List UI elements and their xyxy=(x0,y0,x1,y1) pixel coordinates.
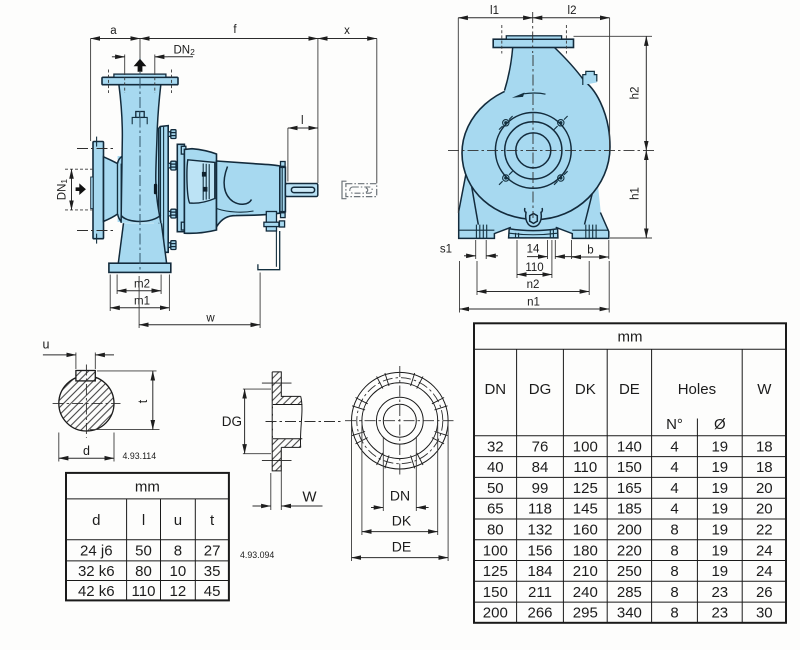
svg-text:50: 50 xyxy=(135,543,152,560)
svg-text:DE: DE xyxy=(392,539,411,555)
svg-text:110: 110 xyxy=(132,583,156,600)
svg-text:165: 165 xyxy=(617,480,642,497)
svg-text:u: u xyxy=(43,338,50,352)
svg-text:295: 295 xyxy=(573,605,598,622)
svg-text:Holes: Holes xyxy=(678,381,716,398)
svg-text:200: 200 xyxy=(483,605,508,622)
svg-text:a: a xyxy=(110,25,117,37)
svg-text:32: 32 xyxy=(487,438,504,455)
svg-text:27: 27 xyxy=(204,543,221,560)
svg-text:t: t xyxy=(136,399,150,403)
svg-text:110: 110 xyxy=(573,459,597,476)
svg-text:DN2: DN2 xyxy=(174,45,196,58)
svg-text:DG: DG xyxy=(529,381,552,398)
svg-text:156: 156 xyxy=(527,542,552,559)
svg-text:t: t xyxy=(210,512,215,529)
svg-text:u: u xyxy=(174,512,182,529)
svg-text:l1: l1 xyxy=(490,5,499,17)
svg-text:118: 118 xyxy=(528,501,552,518)
svg-text:h1: h1 xyxy=(630,187,642,200)
svg-text:23: 23 xyxy=(711,605,728,622)
svg-text:132: 132 xyxy=(527,522,552,539)
svg-text:24: 24 xyxy=(756,563,773,580)
svg-text:76: 76 xyxy=(532,438,549,455)
svg-text:4.93.114: 4.93.114 xyxy=(123,451,157,461)
svg-text:125: 125 xyxy=(573,480,598,497)
svg-text:19: 19 xyxy=(711,501,728,518)
svg-text:45: 45 xyxy=(204,583,221,600)
svg-text:26: 26 xyxy=(756,584,773,601)
svg-text:f: f xyxy=(233,24,237,36)
svg-text:12: 12 xyxy=(170,583,187,600)
svg-text:20: 20 xyxy=(756,501,773,518)
svg-text:110: 110 xyxy=(525,262,543,274)
svg-text:14: 14 xyxy=(527,244,540,256)
svg-text:m1: m1 xyxy=(134,296,150,308)
svg-text:340: 340 xyxy=(617,605,642,622)
svg-text:19: 19 xyxy=(711,563,728,580)
svg-text:19: 19 xyxy=(711,480,728,497)
svg-text:42 k6: 42 k6 xyxy=(78,583,115,600)
svg-text:19: 19 xyxy=(711,438,728,455)
svg-text:W: W xyxy=(302,489,317,506)
svg-text:Ø: Ø xyxy=(714,416,726,433)
svg-text:19: 19 xyxy=(711,542,728,559)
svg-text:DE: DE xyxy=(619,381,640,398)
svg-text:l: l xyxy=(301,115,304,127)
svg-text:8: 8 xyxy=(670,522,678,539)
svg-text:x: x xyxy=(344,25,350,37)
svg-text:220: 220 xyxy=(617,542,642,559)
svg-text:DK: DK xyxy=(575,381,596,398)
svg-text:80: 80 xyxy=(135,563,152,580)
svg-text:240: 240 xyxy=(573,584,598,601)
svg-text:4.93.094: 4.93.094 xyxy=(240,550,274,560)
svg-text:4: 4 xyxy=(670,480,678,497)
svg-text:250: 250 xyxy=(617,563,642,580)
svg-text:185: 185 xyxy=(617,501,642,518)
svg-text:DG: DG xyxy=(222,414,242,429)
svg-text:s1: s1 xyxy=(440,244,452,256)
svg-text:4: 4 xyxy=(670,438,678,455)
svg-text:80: 80 xyxy=(487,522,504,539)
svg-text:50: 50 xyxy=(487,480,504,497)
svg-text:DN: DN xyxy=(484,381,506,398)
svg-text:285: 285 xyxy=(617,584,642,601)
svg-text:DN1: DN1 xyxy=(57,179,70,201)
svg-text:150: 150 xyxy=(483,584,508,601)
svg-text:100: 100 xyxy=(483,542,508,559)
svg-text:210: 210 xyxy=(573,563,598,580)
svg-text:184: 184 xyxy=(527,563,552,580)
svg-text:24: 24 xyxy=(756,542,773,559)
svg-text:mm: mm xyxy=(135,479,160,496)
svg-text:n2: n2 xyxy=(527,279,540,291)
svg-text:W: W xyxy=(757,381,772,398)
svg-text:20: 20 xyxy=(756,480,773,497)
svg-text:180: 180 xyxy=(573,542,598,559)
svg-text:32 k6: 32 k6 xyxy=(78,563,115,580)
svg-text:84: 84 xyxy=(532,459,549,476)
svg-text:b: b xyxy=(587,245,593,257)
svg-text:4: 4 xyxy=(670,459,678,476)
svg-text:211: 211 xyxy=(528,584,552,601)
svg-text:h2: h2 xyxy=(630,87,642,100)
svg-text:23: 23 xyxy=(711,584,728,601)
svg-text:d: d xyxy=(83,444,90,458)
svg-text:w: w xyxy=(205,313,215,325)
svg-text:140: 140 xyxy=(617,438,642,455)
svg-text:N°: N° xyxy=(666,416,683,433)
svg-text:8: 8 xyxy=(670,605,678,622)
svg-text:mm: mm xyxy=(618,329,643,346)
svg-text:40: 40 xyxy=(487,459,504,476)
svg-text:DN: DN xyxy=(390,488,410,504)
svg-text:4: 4 xyxy=(670,501,678,518)
svg-text:10: 10 xyxy=(170,563,187,580)
svg-text:35: 35 xyxy=(204,563,221,580)
svg-text:19: 19 xyxy=(711,459,728,476)
svg-text:18: 18 xyxy=(756,438,773,455)
svg-text:125: 125 xyxy=(483,563,508,580)
svg-text:19: 19 xyxy=(711,522,728,539)
svg-text:65: 65 xyxy=(487,501,504,518)
svg-text:8: 8 xyxy=(670,563,678,580)
svg-text:8: 8 xyxy=(670,584,678,601)
svg-text:l2: l2 xyxy=(568,5,577,17)
svg-text:145: 145 xyxy=(573,501,598,518)
svg-text:18: 18 xyxy=(756,459,773,476)
svg-text:160: 160 xyxy=(573,522,598,539)
svg-text:24 j6: 24 j6 xyxy=(80,543,113,560)
svg-text:DK: DK xyxy=(392,513,412,529)
svg-text:22: 22 xyxy=(756,522,773,539)
svg-text:200: 200 xyxy=(617,522,642,539)
svg-text:l: l xyxy=(142,512,145,529)
svg-text:d: d xyxy=(92,512,100,529)
svg-text:99: 99 xyxy=(532,480,549,497)
svg-text:m2: m2 xyxy=(134,279,150,291)
svg-text:266: 266 xyxy=(527,605,552,622)
svg-text:100: 100 xyxy=(573,438,598,455)
svg-text:150: 150 xyxy=(617,459,642,476)
svg-text:30: 30 xyxy=(756,605,773,622)
svg-text:8: 8 xyxy=(174,543,182,560)
svg-text:8: 8 xyxy=(670,542,678,559)
svg-text:n1: n1 xyxy=(527,297,540,309)
